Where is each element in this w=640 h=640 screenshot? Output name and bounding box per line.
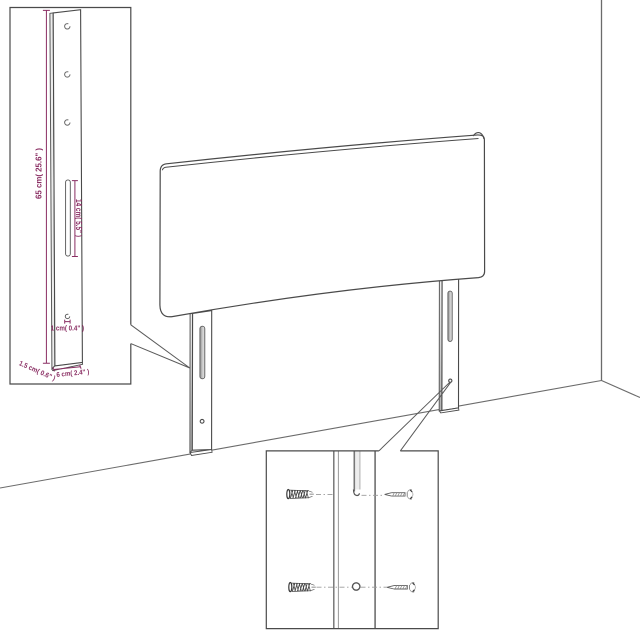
svg-text:14 cm( 5.5" ): 14 cm( 5.5" ) (74, 199, 83, 237)
svg-text:65 cm( 25.6" ): 65 cm( 25.6" ) (34, 148, 44, 199)
svg-text:1 cm( 0.4" ): 1 cm( 0.4" ) (51, 325, 85, 332)
